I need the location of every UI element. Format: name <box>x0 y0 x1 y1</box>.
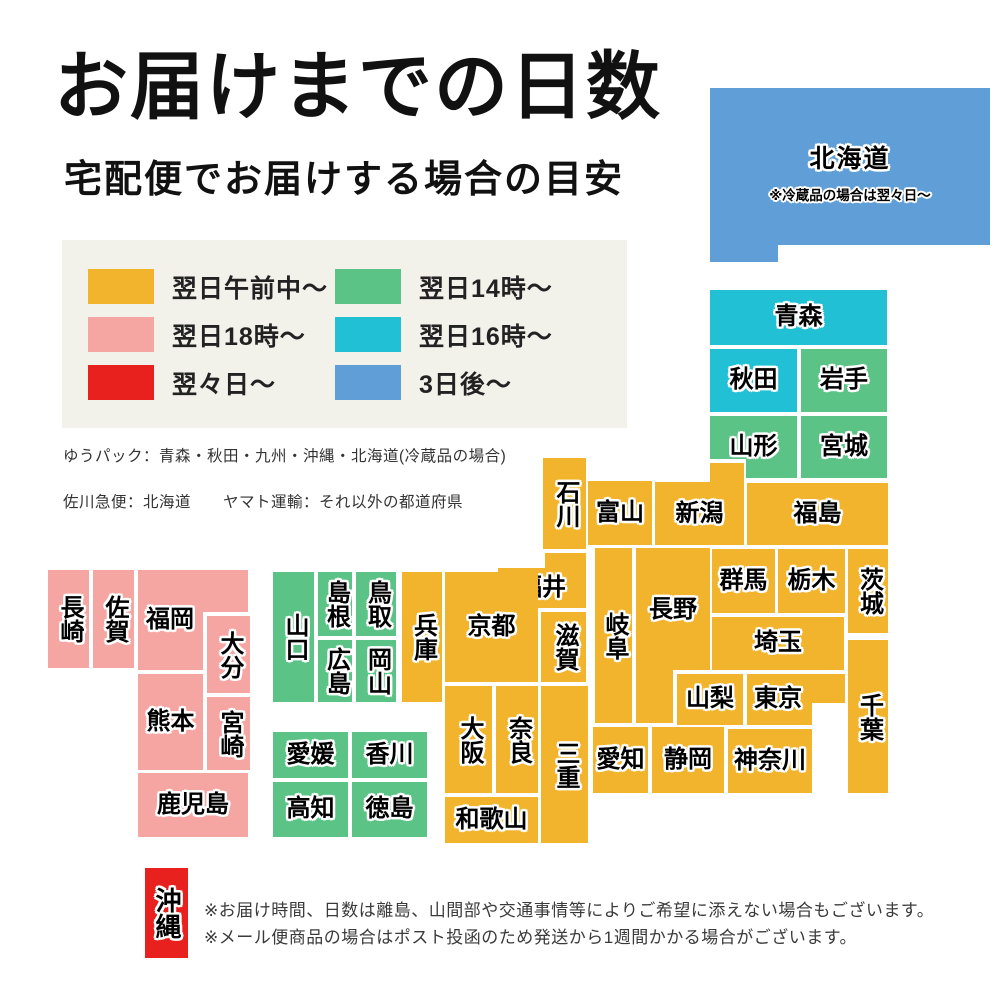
pref-saitama: 埼玉 <box>712 617 844 670</box>
legend-swatch <box>88 269 154 304</box>
pref-saga: 佐賀 <box>93 570 134 668</box>
pref-tottori: 鳥取 <box>356 572 396 636</box>
pref-oita: 大分 <box>207 616 250 693</box>
pref-yamagata-label: 山形 <box>730 435 778 460</box>
legend-item: 翌々日〜 <box>88 365 328 400</box>
carrier-note-line2: 佐川急便：北海道 ヤマト運輸：それ以外の都道府県 <box>63 494 463 511</box>
pref-saitama-label: 埼玉 <box>754 631 802 656</box>
pref-kanagawa: 神奈川 <box>728 729 812 793</box>
pref-yamanashi-label: 山梨 <box>686 687 734 712</box>
pref-ehime: 愛媛 <box>273 732 348 778</box>
pref-aichi-label: 愛知 <box>597 748 645 773</box>
pref-akita-label: 秋田 <box>730 368 778 393</box>
pref-kagawa-label: 香川 <box>366 743 414 768</box>
pref-okinawa: 沖縄 <box>145 868 188 958</box>
pref-iwate: 岩手 <box>801 349 887 412</box>
pref-tokushima: 徳島 <box>352 782 427 837</box>
pref-tokyo-label: 東京 <box>754 687 802 712</box>
legend-item: 翌日18時〜 <box>88 317 328 352</box>
pref-ehime-label: 愛媛 <box>287 743 335 768</box>
pref-wakayama: 和歌山 <box>445 797 538 843</box>
pref-kochi-label: 高知 <box>287 797 335 822</box>
pref-kagoshima: 鹿児島 <box>138 773 248 837</box>
pref-shimane-label: 島根 <box>323 580 348 628</box>
legend-label: 翌日午前中〜 <box>172 269 328 305</box>
legend-item: 3日後〜 <box>335 365 553 400</box>
pref-nagano-label: 長野 <box>649 598 697 623</box>
pref-miyazaki-label: 宮崎 <box>216 710 241 758</box>
legend-label: 翌日18時〜 <box>172 317 306 353</box>
legend-column-left: 翌日午前中〜翌日18時〜翌々日〜 <box>88 269 328 413</box>
pref-kyoto-label: 京都 <box>468 615 516 640</box>
delivery-days-infographic: お届けまでの日数 宅配便でお届けする場合の目安 翌日午前中〜翌日18時〜翌々日〜… <box>0 0 1000 1000</box>
pref-akita: 秋田 <box>710 349 797 412</box>
pref-okinawa-label: 沖縄 <box>153 887 180 939</box>
pref-saga-label: 佐賀 <box>101 595 126 643</box>
footer-notes: ※お届け時間、日数は離島、山間部や交通事情等によりご希望に添えない場合もございま… <box>204 897 934 951</box>
legend-item: 翌日14時〜 <box>335 269 553 304</box>
pref-chiba: 千葉 <box>848 640 888 793</box>
pref-ishikawa: 石川 <box>543 458 586 549</box>
pref-miyagi-label: 宮城 <box>820 435 868 460</box>
pref-aomori-label: 青森 <box>775 305 823 330</box>
legend-label: 翌々日〜 <box>172 365 276 401</box>
pref-kyoto: 京都 <box>445 572 538 682</box>
pref-yamanashi: 山梨 <box>677 674 743 725</box>
pref-nagasaki-label: 長崎 <box>56 595 81 643</box>
legend-panel: 翌日午前中〜翌日18時〜翌々日〜 翌日14時〜翌日16時〜3日後〜 <box>62 240 627 428</box>
legend-column-right: 翌日14時〜翌日16時〜3日後〜 <box>335 269 553 413</box>
pref-yamaguchi-label: 山口 <box>281 613 306 661</box>
pref-gifu-label: 岐阜 <box>601 612 626 660</box>
legend-item: 翌日午前中〜 <box>88 269 328 304</box>
pref-toyama-label: 富山 <box>596 501 644 526</box>
pref-gunma-label: 群馬 <box>720 569 768 594</box>
pref-hiroshima-label: 広島 <box>323 647 348 695</box>
pref-tokushima-label: 徳島 <box>366 797 414 822</box>
pref-tochigi-label: 栃木 <box>788 569 836 594</box>
pref-mie-label: 三重 <box>552 741 577 789</box>
pref-kagoshima-label: 鹿児島 <box>157 793 229 818</box>
pref-kagawa: 香川 <box>352 732 427 778</box>
pref-okayama: 岡山 <box>356 640 396 702</box>
pref-osaka-label: 大阪 <box>456 716 481 764</box>
pref-niigata: 新潟 <box>655 463 744 545</box>
pref-hyogo-label: 兵庫 <box>410 613 435 661</box>
pref-gunma: 群馬 <box>712 549 775 613</box>
pref-chiba-label: 千葉 <box>856 693 881 741</box>
pref-hokkaido-note: ※冷蔵品の場合は翌々日〜 <box>769 184 931 204</box>
legend-swatch <box>88 317 154 352</box>
pref-oita-label: 大分 <box>216 631 241 679</box>
pref-nagasaki: 長崎 <box>48 570 89 668</box>
pref-wakayama-label: 和歌山 <box>456 808 528 833</box>
pref-shiga: 滋賀 <box>541 612 586 682</box>
pref-fukushima: 福島 <box>747 483 888 545</box>
legend-item: 翌日16時〜 <box>335 317 553 352</box>
pref-kumamoto-label: 熊本 <box>147 710 195 735</box>
pref-hyogo: 兵庫 <box>402 572 442 702</box>
pref-tokyo: 東京 <box>747 674 845 725</box>
pref-tochigi: 栃木 <box>778 549 845 613</box>
pref-ibaraki: 茨城 <box>848 549 888 633</box>
pref-shiga-label: 滋賀 <box>551 623 576 671</box>
pref-gifu: 岐阜 <box>595 548 632 723</box>
pref-ibaraki-label: 茨城 <box>856 567 881 615</box>
carrier-note: ゆうパック：青森・秋田・九州・沖縄・北海道(冷蔵品の場合) 佐川急便：北海道 ヤ… <box>63 445 506 514</box>
pref-aomori: 青森 <box>710 290 887 345</box>
page-title: お届けまでの日数 <box>54 48 662 129</box>
pref-fukuoka-label: 福岡 <box>146 608 194 633</box>
legend-swatch <box>88 365 154 400</box>
pref-niigata-label: 新潟 <box>676 502 724 527</box>
pref-ishikawa-label: 石川 <box>552 480 577 528</box>
pref-aichi: 愛知 <box>593 727 648 793</box>
legend-swatch <box>335 317 401 352</box>
legend-label: 翌日16時〜 <box>419 317 553 353</box>
pref-nara-label: 奈良 <box>505 716 530 764</box>
page-subtitle: 宅配便でお届けする場合の目安 <box>64 148 624 203</box>
footer-note-1: ※お届け時間、日数は離島、山間部や交通事情等によりご希望に添えない場合もございま… <box>204 901 934 920</box>
pref-tottori-label: 鳥取 <box>364 580 389 628</box>
carrier-note-line1: ゆうパック：青森・秋田・九州・沖縄・北海道(冷蔵品の場合) <box>63 448 506 465</box>
pref-hokkaido-label: 北海道 <box>809 146 890 172</box>
pref-mie: 三重 <box>541 686 588 843</box>
pref-miyazaki: 宮崎 <box>207 697 250 770</box>
pref-kochi: 高知 <box>273 782 348 837</box>
pref-fukushima-label: 福島 <box>794 502 842 527</box>
pref-kanagawa-label: 神奈川 <box>734 749 806 774</box>
footer-note-2: ※メール便商品の場合はポスト投函のため発送から1週間かかる場合がございます。 <box>204 928 857 947</box>
pref-iwate-label: 岩手 <box>820 368 868 393</box>
pref-nara: 奈良 <box>496 686 538 793</box>
pref-miyagi: 宮城 <box>801 416 887 478</box>
pref-osaka: 大阪 <box>445 686 492 793</box>
pref-hokkaido: 北海道※冷蔵品の場合は翌々日〜 <box>710 88 990 262</box>
pref-shizuoka-label: 静岡 <box>664 748 712 773</box>
pref-hiroshima: 広島 <box>318 640 352 702</box>
legend-swatch <box>335 365 401 400</box>
legend-label: 3日後〜 <box>419 365 512 401</box>
pref-yamaguchi: 山口 <box>273 572 314 702</box>
pref-toyama: 富山 <box>588 481 652 545</box>
legend-swatch <box>335 269 401 304</box>
pref-kumamoto: 熊本 <box>138 674 203 770</box>
pref-shimane: 島根 <box>318 572 352 636</box>
pref-shizuoka: 静岡 <box>652 727 724 793</box>
legend-label: 翌日14時〜 <box>419 269 553 305</box>
pref-okayama-label: 岡山 <box>364 647 389 695</box>
